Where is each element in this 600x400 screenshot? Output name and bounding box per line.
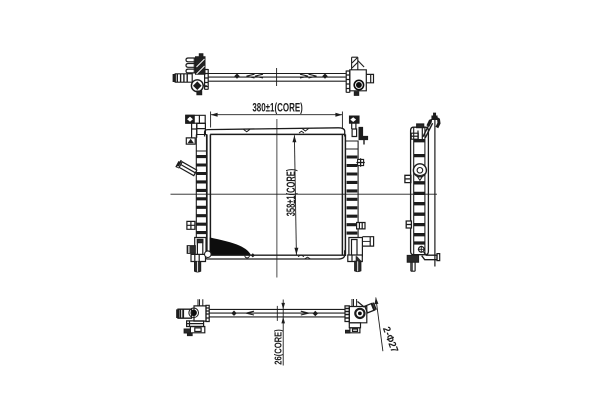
svg-text:358±1(CORE): 358±1(CORE)	[286, 169, 298, 217]
svg-text:26(CORE): 26(CORE)	[274, 329, 285, 365]
svg-text:380±1(CORE): 380±1(CORE)	[252, 103, 303, 115]
